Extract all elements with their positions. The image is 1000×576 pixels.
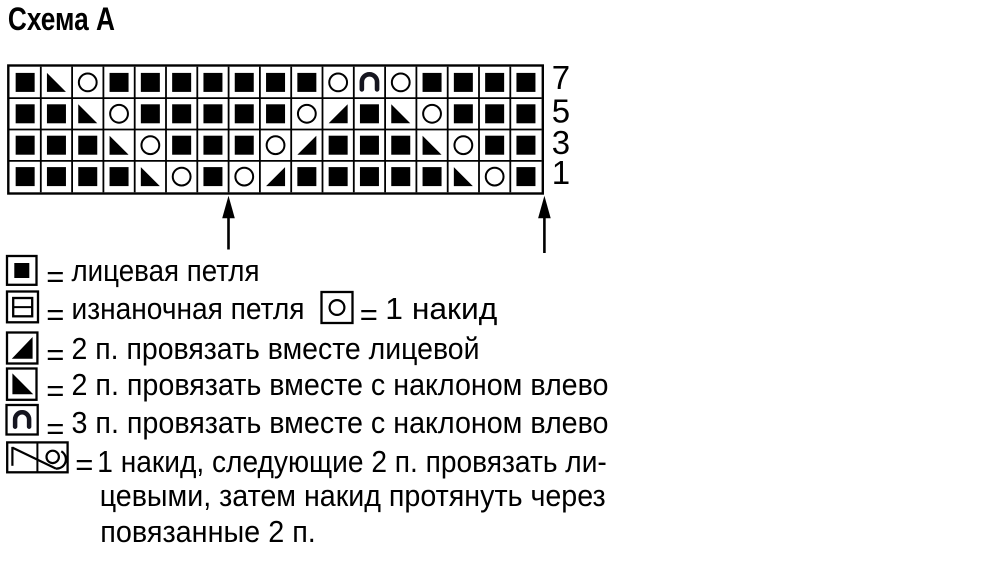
svg-text:=: = — [46, 411, 64, 446]
svg-text:цевыми, затем накид протянуть: цевыми, затем накид протянуть через — [100, 478, 606, 513]
svg-text:=: = — [46, 373, 64, 408]
svg-text:7: 7 — [552, 59, 570, 96]
svg-text:=: = — [360, 297, 378, 332]
svg-text:1 накид: 1 накид — [385, 291, 497, 326]
svg-text:изнаночная петля: изнаночная петля — [72, 291, 305, 326]
svg-text:1: 1 — [552, 154, 570, 191]
svg-text:повязанные 2 п.: повязанные 2 п. — [100, 514, 315, 549]
svg-text:=: = — [46, 297, 64, 332]
svg-text:2 п. провязать вместе с наклон: 2 п. провязать вместе с наклоном влево — [72, 367, 609, 402]
svg-text:1 накид, следующие 2 п. провяз: 1 накид, следующие 2 п. провязать ли- — [97, 444, 607, 479]
svg-text:=: = — [46, 337, 64, 372]
svg-text:лицевая петля: лицевая петля — [72, 253, 260, 288]
svg-text:=: = — [75, 447, 93, 482]
svg-text:Схема А: Схема А — [8, 1, 115, 37]
svg-text:2 п. провязать вместе лицевой: 2 п. провязать вместе лицевой — [72, 331, 480, 366]
svg-text:3 п. провязать вместе с наклон: 3 п. провязать вместе с наклоном влево — [72, 405, 609, 440]
svg-text:=: = — [46, 259, 64, 294]
